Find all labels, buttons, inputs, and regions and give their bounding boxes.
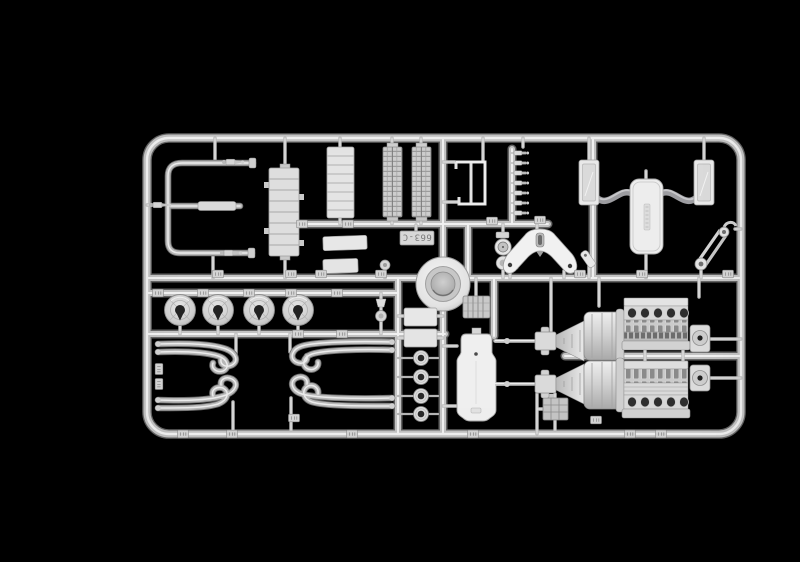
small-plate-3: [404, 308, 437, 326]
side-panel-left: [579, 160, 599, 205]
end-cap-2: [690, 365, 710, 391]
oil-cooler-part: [463, 296, 490, 318]
sprue-code-tag-label: 663-C: [402, 232, 432, 242]
grille-tower-2: [412, 143, 431, 221]
engine-block-half-2: [622, 361, 690, 418]
small-plate-2: [323, 258, 358, 273]
radiator-core-part: [264, 164, 304, 260]
fuel-tank-part: [630, 179, 663, 254]
brake-disc-2: [203, 295, 234, 326]
floor-pan-part: [457, 328, 496, 421]
mirror-stem-part: [380, 260, 390, 270]
brake-drum-part: [416, 257, 470, 311]
sprue-photo: 663-C: [40, 16, 800, 546]
sprue-frame: 663-C: [40, 16, 800, 546]
end-cap-1: [690, 325, 710, 352]
ribbed-panel-part: [327, 147, 354, 218]
brake-disc-4: [283, 295, 314, 326]
small-plate-1: [323, 235, 367, 251]
sprue-code-tag: 663-C: [400, 231, 434, 245]
engine-block-half-1: [622, 298, 690, 350]
brake-disc-1: [165, 295, 196, 326]
hub-ring-3: [414, 389, 429, 404]
hub-ring-4: [414, 407, 429, 422]
hub-ring-1: [414, 351, 429, 366]
small-plate-4: [404, 329, 437, 347]
side-panel-right: [694, 160, 714, 205]
grille-tower-1: [383, 143, 402, 221]
brake-disc-3: [244, 295, 275, 326]
hub-ring-2: [414, 370, 429, 385]
